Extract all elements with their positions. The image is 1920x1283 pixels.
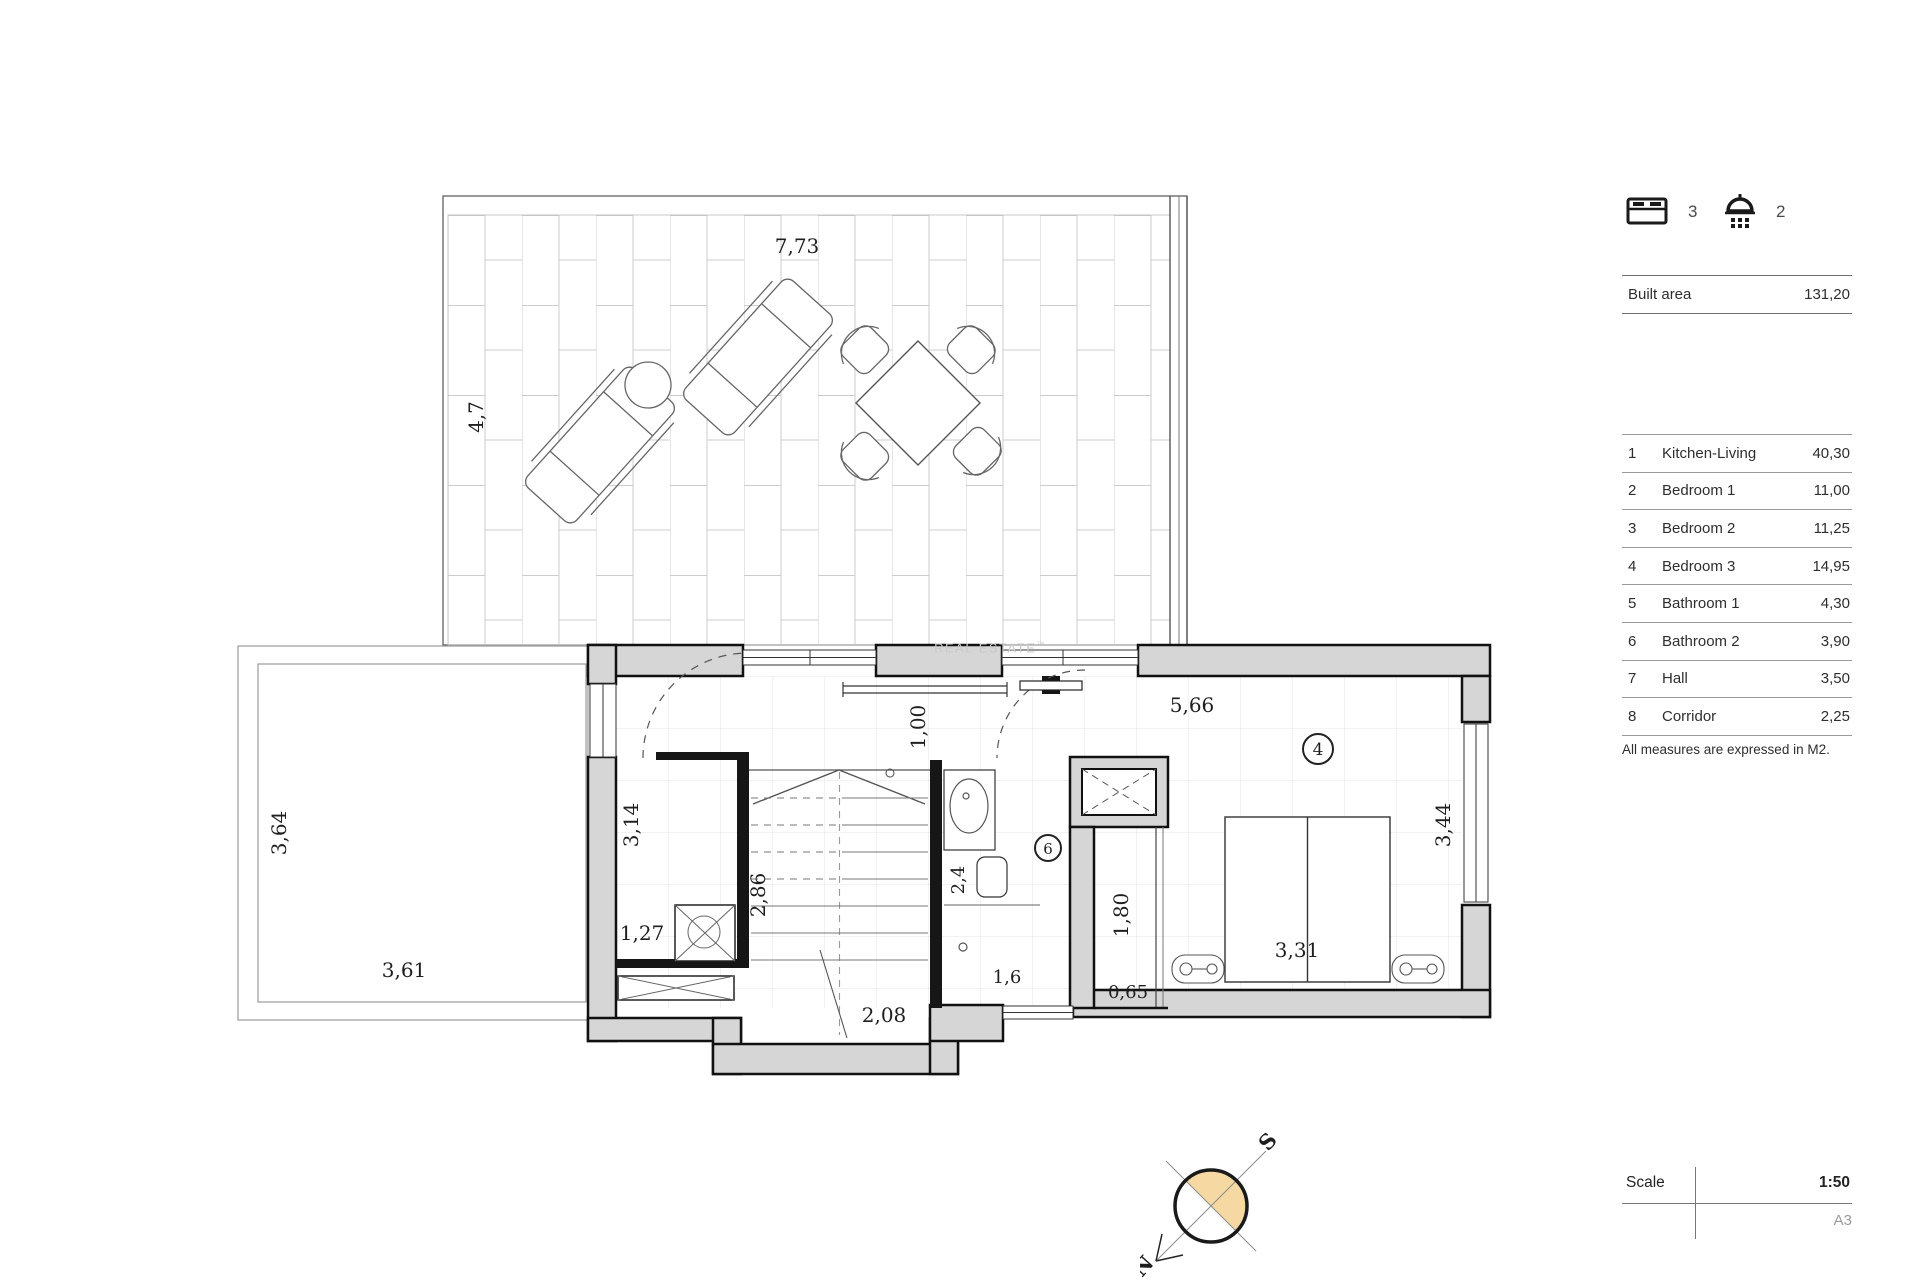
table-row: 8Corridor2,25 bbox=[1622, 697, 1852, 736]
room-area: 3,50 bbox=[1821, 670, 1852, 687]
dim-stairs-width: 2,08 bbox=[862, 1003, 907, 1027]
built-area-value: 131,20 bbox=[1804, 286, 1852, 303]
floor-plan-page: { "colors": { "wall_fill": "#d6d6d6", "w… bbox=[0, 0, 1920, 1280]
watermark: REAL ESTATE™ bbox=[900, 640, 1080, 655]
dim-wardrobe-width: 0,65 bbox=[1108, 982, 1148, 1003]
room-number: 2 bbox=[1622, 482, 1662, 499]
bathroom-count: 2 bbox=[1776, 202, 1785, 222]
window-bottom bbox=[1003, 1006, 1073, 1019]
room-table: 1Kitchen-Living40,30 2Bedroom 111,00 3Be… bbox=[1622, 434, 1852, 736]
built-area-label: Built area bbox=[1622, 286, 1804, 303]
room-area: 2,25 bbox=[1821, 708, 1852, 725]
nightstand bbox=[1172, 955, 1224, 983]
paper-size: A3 bbox=[1622, 1212, 1854, 1229]
room-number: 8 bbox=[1622, 708, 1662, 725]
dim-bath1-height: 3,14 bbox=[619, 803, 643, 848]
table-row: 1Kitchen-Living40,30 bbox=[1622, 434, 1852, 472]
room-name: Bathroom 2 bbox=[1662, 633, 1821, 650]
measures-note: All measures are expressed in M2. bbox=[1622, 742, 1862, 757]
room-name: Kitchen-Living bbox=[1662, 445, 1812, 462]
room-number: 3 bbox=[1622, 520, 1662, 537]
nightstand bbox=[1392, 955, 1444, 983]
shower-icon bbox=[1720, 192, 1760, 230]
room-number: 6 bbox=[1622, 633, 1662, 650]
dim-wc: 2,4 bbox=[948, 866, 969, 895]
compass-south: S bbox=[1253, 1128, 1282, 1155]
room-number: 7 bbox=[1622, 670, 1662, 687]
room-name: Hall bbox=[1662, 670, 1821, 687]
room-area: 14,95 bbox=[1812, 558, 1852, 575]
toilet bbox=[977, 857, 1007, 897]
window-left bbox=[590, 684, 616, 757]
table-row: 2Bedroom 111,00 bbox=[1622, 472, 1852, 510]
bed-icon bbox=[1626, 196, 1668, 226]
room-area: 40,30 bbox=[1812, 445, 1852, 462]
room-number: 1 bbox=[1622, 445, 1662, 462]
trademark-symbol: ™ bbox=[1036, 640, 1046, 649]
built-area-row: Built area 131,20 bbox=[1622, 275, 1852, 314]
marker-bathroom2: 6 bbox=[1043, 840, 1053, 858]
table-row: 6Bathroom 23,90 bbox=[1622, 622, 1852, 660]
dim-bed-width: 3,31 bbox=[1275, 938, 1320, 962]
terrace bbox=[443, 196, 1187, 645]
compass-north: N bbox=[1140, 1250, 1159, 1281]
dim-terrace-height: 4,7 bbox=[464, 401, 488, 433]
room-name: Bathroom 1 bbox=[1662, 595, 1821, 612]
table-row: 7Hall3,50 bbox=[1622, 660, 1852, 698]
scale-label: Scale bbox=[1622, 1174, 1819, 1192]
room-number: 5 bbox=[1622, 595, 1662, 612]
dim-stairs-height: 2,86 bbox=[746, 873, 770, 918]
table-row: 3Bedroom 211,25 bbox=[1622, 509, 1852, 547]
dim-bedroom-height: 3,44 bbox=[1431, 803, 1455, 848]
room-area: 11,00 bbox=[1814, 482, 1852, 499]
dim-bedroom-width: 5,66 bbox=[1170, 693, 1215, 717]
bedroom-count: 3 bbox=[1688, 202, 1697, 222]
room-area: 11,25 bbox=[1814, 520, 1852, 537]
dim-pool-height: 3,64 bbox=[267, 811, 291, 856]
room-name: Corridor bbox=[1662, 708, 1821, 725]
room-area: 3,90 bbox=[1821, 633, 1852, 650]
dim-bath1-width: 1,27 bbox=[620, 921, 665, 945]
room-area: 4,30 bbox=[1821, 595, 1852, 612]
dim-corridor-width: 1,00 bbox=[906, 705, 930, 750]
scale-value: 1:50 bbox=[1819, 1174, 1852, 1192]
table-row: 4Bedroom 314,95 bbox=[1622, 547, 1852, 585]
scale-row: Scale 1:50 bbox=[1622, 1174, 1852, 1192]
dim-wardrobe-height: 1,80 bbox=[1109, 893, 1133, 938]
dim-pool-width: 3,61 bbox=[382, 958, 427, 982]
room-name: Bedroom 1 bbox=[1662, 482, 1814, 499]
dim-window-width: 1,6 bbox=[993, 967, 1022, 988]
window-top-1 bbox=[743, 650, 876, 665]
summary-icons: 3 2 bbox=[1622, 192, 1862, 232]
window-bedroom bbox=[1464, 724, 1488, 902]
table-row: 5Bathroom 14,30 bbox=[1622, 584, 1852, 622]
side-table bbox=[625, 362, 671, 408]
room-number: 4 bbox=[1622, 558, 1662, 575]
scale-divider bbox=[1622, 1203, 1852, 1204]
dim-terrace-width: 7,73 bbox=[775, 234, 820, 258]
room-name: Bedroom 3 bbox=[1662, 558, 1812, 575]
room-name: Bedroom 2 bbox=[1662, 520, 1814, 537]
compass: S N bbox=[1140, 1128, 1290, 1283]
marker-bedroom3: 4 bbox=[1313, 740, 1324, 760]
